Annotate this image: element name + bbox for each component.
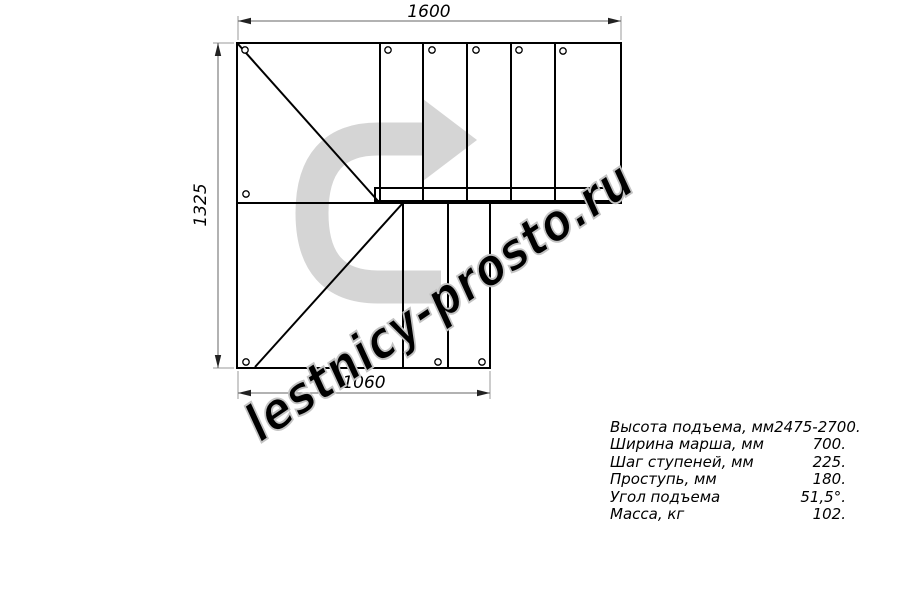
arrowhead (423, 99, 477, 181)
spec-label: Ширина марша, мм (610, 436, 764, 453)
dimension-left: 1325 (191, 43, 221, 368)
spec-label: Угол подъема (610, 489, 720, 506)
spec-label: Высота подъема, мм (610, 419, 774, 436)
spec-value: 51,5°. (800, 489, 846, 506)
spec-row-angle: Угол подъема 51,5°. (610, 489, 846, 506)
spec-value: 102. (813, 506, 846, 523)
spec-label: Масса, кг (610, 506, 684, 523)
spec-label: Проступь, мм (610, 471, 717, 488)
spec-label: Шаг ступеней, мм (610, 454, 754, 471)
stair-drawing-canvas: 1600 1325 1060 lestnicy-prosto.ru Высота… (0, 0, 900, 600)
dimension-top-value: 1600 (407, 2, 450, 22)
spec-row-march-width: Ширина марша, мм 700. (610, 436, 846, 453)
specs-table: Высота подъема, мм 2475-2700. Ширина мар… (610, 419, 846, 523)
spec-row-tread: Проступь, мм 180. (610, 471, 846, 488)
spec-row-mass: Масса, кг 102. (610, 506, 846, 523)
spec-value: 180. (813, 471, 846, 488)
dimension-top: 1600 (238, 2, 621, 24)
spec-value: 700. (813, 436, 846, 453)
spec-row-lift-height: Высота подъема, мм 2475-2700. (610, 419, 846, 436)
watermark-text: lestnicy-prosto.ru (234, 150, 645, 454)
spec-value: 2475-2700. (774, 419, 861, 436)
spec-value: 225. (813, 454, 846, 471)
spec-row-step-pitch: Шаг ступеней, мм 225. (610, 454, 846, 471)
dimension-left-value: 1325 (191, 183, 211, 226)
